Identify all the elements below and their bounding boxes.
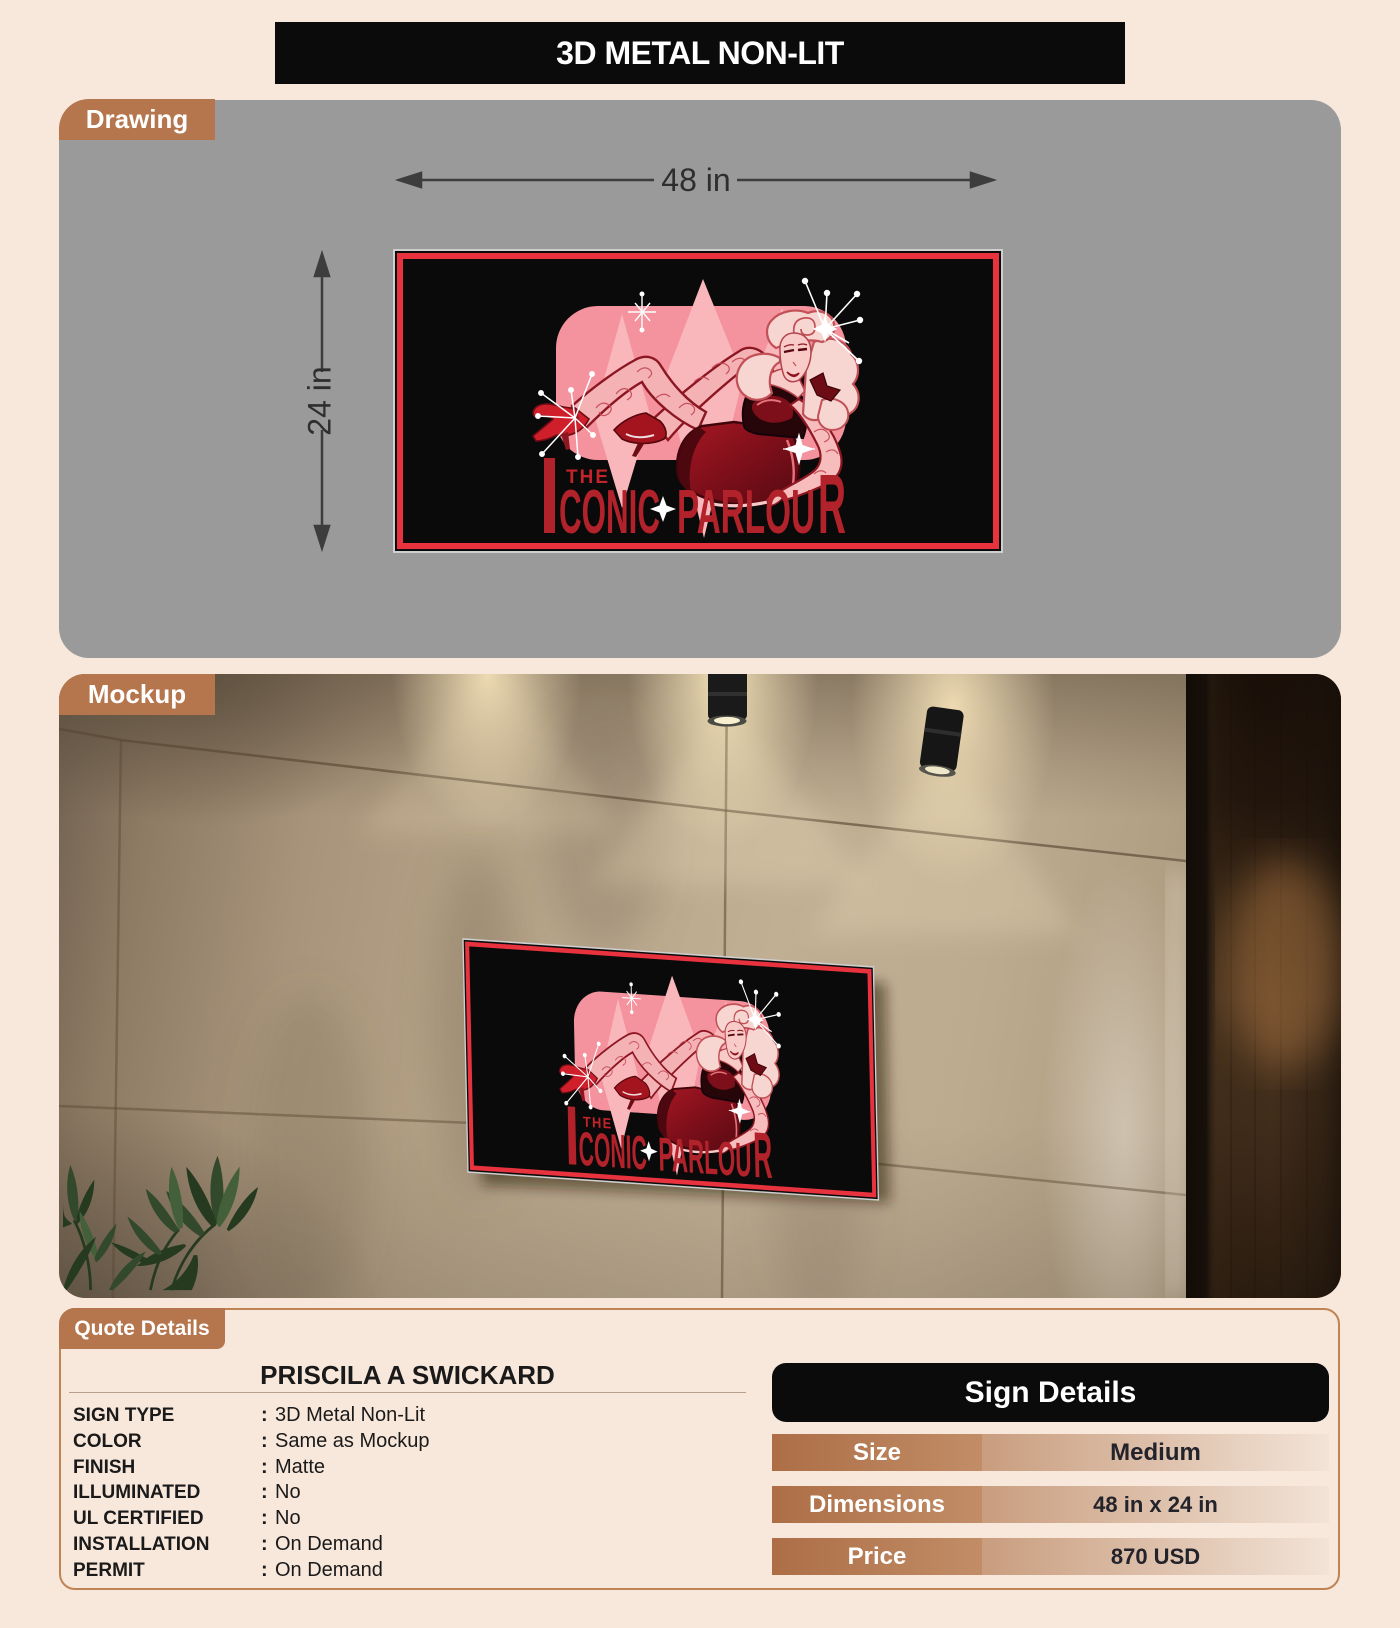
svg-text:24 in: 24 in bbox=[301, 366, 337, 435]
svg-text:R: R bbox=[818, 457, 846, 551]
svg-text:PARLOU: PARLOU bbox=[677, 478, 815, 547]
svg-text:48 in: 48 in bbox=[661, 162, 730, 198]
svg-text:CONIC: CONIC bbox=[559, 478, 660, 547]
